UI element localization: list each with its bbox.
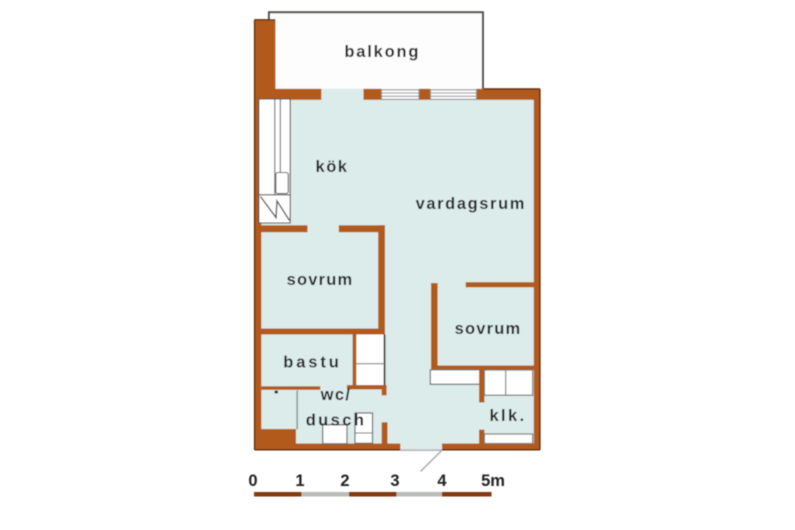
svg-text:klk.: klk.: [489, 407, 526, 425]
svg-text:2: 2: [340, 472, 349, 490]
svg-text:0: 0: [248, 472, 257, 490]
svg-text:4: 4: [437, 472, 447, 490]
svg-text:bastu: bastu: [283, 353, 342, 371]
svg-text:balkong: balkong: [344, 43, 420, 61]
svg-text:sovrum: sovrum: [287, 271, 354, 289]
svg-text:vardagsrum: vardagsrum: [416, 195, 526, 213]
svg-text:5m: 5m: [481, 472, 505, 490]
svg-text:3: 3: [390, 472, 399, 490]
svg-text:kök: kök: [316, 158, 349, 176]
svg-text:1: 1: [295, 472, 304, 490]
svg-text:dusch: dusch: [306, 412, 367, 430]
svg-text:wc/: wc/: [320, 386, 352, 404]
svg-text:sovrum: sovrum: [455, 320, 522, 338]
